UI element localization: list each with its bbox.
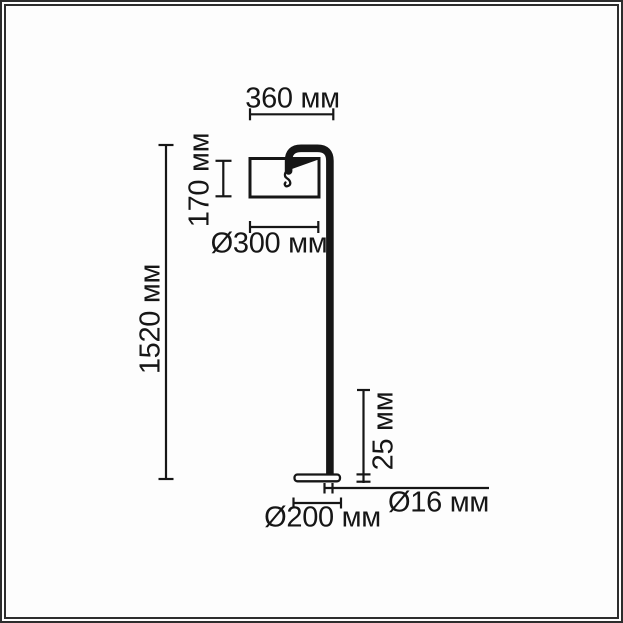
label-base-height: 25 мм [369,391,398,470]
dimension-shade-height [216,161,232,197]
label-base-diameter: Ø200 мм [264,504,381,533]
label-arm-reach: 360 мм [245,84,340,113]
label-pole-diameter: Ø16 мм [388,488,489,517]
label-shade-height: 170 мм [185,133,214,228]
label-total-height: 1520 мм [137,264,166,374]
lamp-shade [250,159,319,198]
lamp-base [295,475,341,482]
label-shade-diameter: Ø300 мм [211,229,328,258]
